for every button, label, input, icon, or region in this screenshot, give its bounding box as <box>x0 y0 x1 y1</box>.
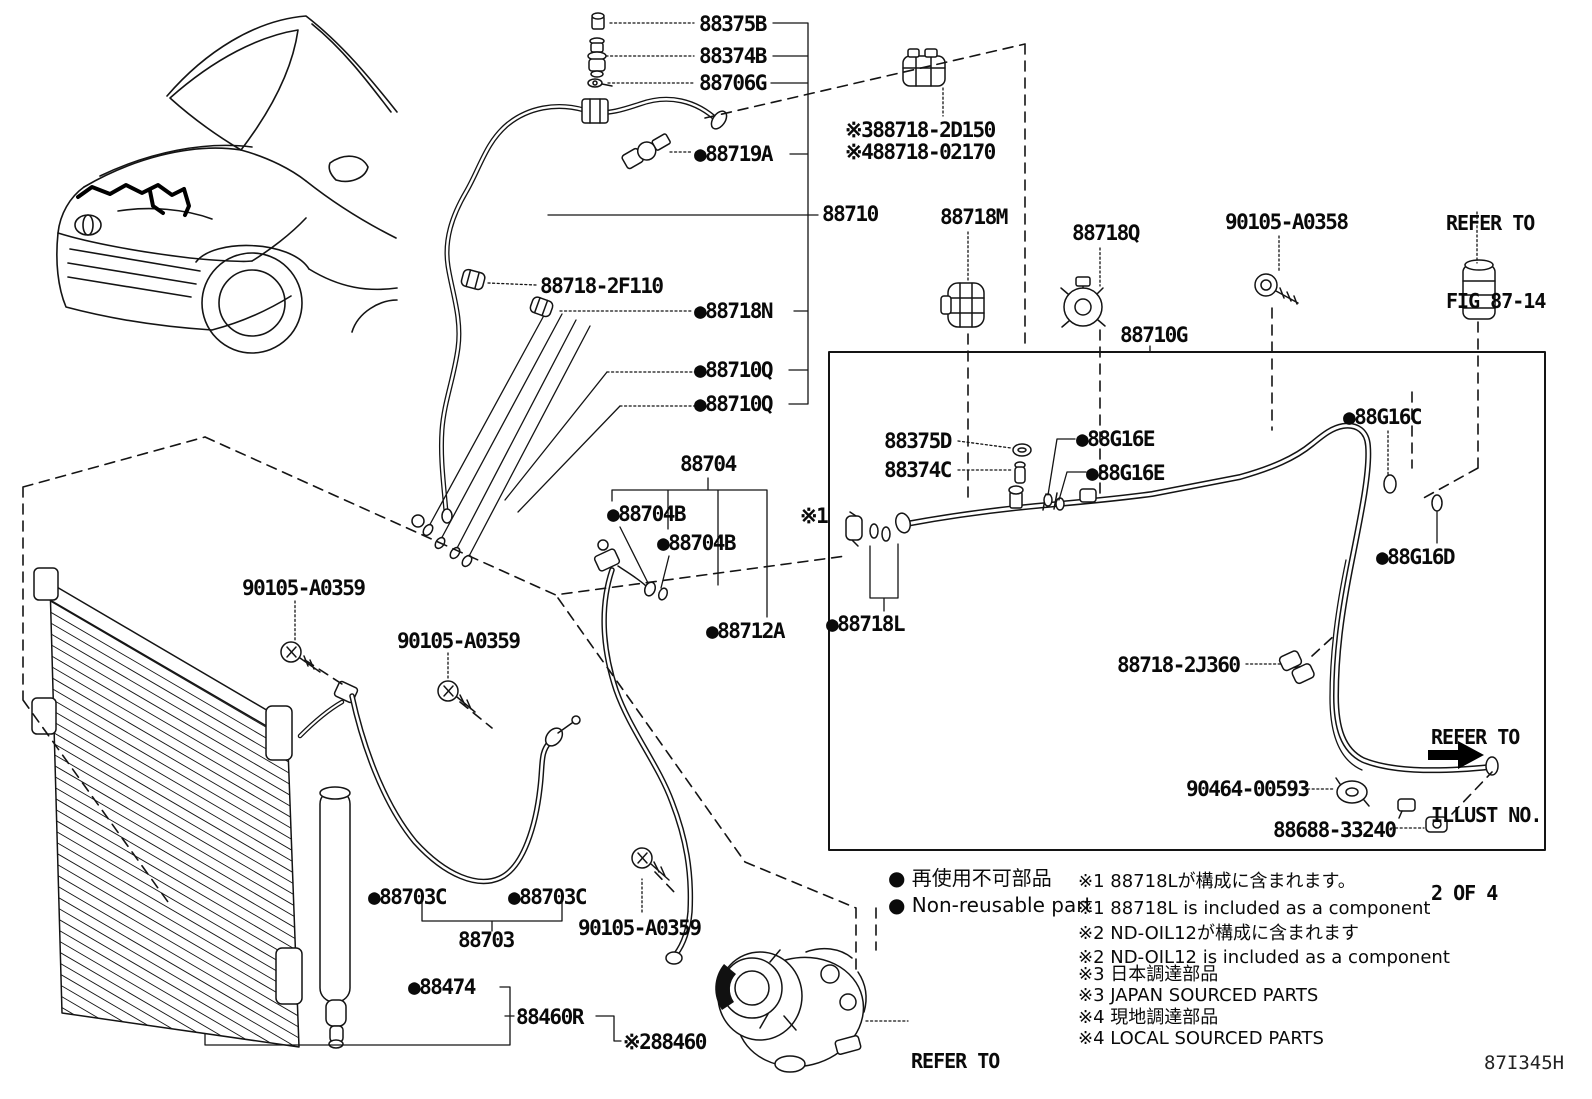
part-label-88718-2d150[interactable]: ※388718-2D150 <box>845 119 995 141</box>
grommet-88g16d-glyph <box>1432 495 1442 511</box>
part-label-88719a[interactable]: ●88719A <box>694 143 772 165</box>
legend-non-reusable-en: ● Non-reusable part <box>888 893 1092 917</box>
note-1-jp: ※1 88718Lが構成に含まれます。 <box>1078 871 1356 892</box>
refer-to-fig-87-14: REFER TO FIG 87-14 <box>1446 158 1545 340</box>
part-label-88718l[interactable]: ●88718L <box>826 613 904 635</box>
note-3-en: ※3 JAPAN SOURCED PARTS <box>1078 985 1318 1006</box>
note-1-en: ※1 88718L is included as a component <box>1078 898 1430 919</box>
part-label-88g16e-1[interactable]: ●88G16E <box>1076 428 1154 450</box>
part-label-90105-a0358[interactable]: 90105-A0358 <box>1225 211 1348 233</box>
part-label-88712a[interactable]: ●88712A <box>706 620 784 642</box>
part-label-88718m[interactable]: 88718M <box>940 206 1007 228</box>
part-label-88704b-2[interactable]: ●88704B <box>657 532 735 554</box>
compressor-sketch <box>715 944 875 1080</box>
grommet-88g16c-glyph <box>1384 475 1396 493</box>
valve-core-88374c-glyph <box>1015 462 1025 483</box>
cap-88375d-glyph <box>1013 444 1031 456</box>
note-3-jp: ※3 日本調達部品 <box>1078 964 1218 985</box>
part-label-88375d[interactable]: 88375D <box>884 430 951 452</box>
part-label-88688-33240[interactable]: 88688-33240 <box>1273 819 1396 841</box>
vehicle-sketch <box>57 16 397 353</box>
note-marker-1: ※1 <box>800 505 827 527</box>
refer-to-illust-2of4: REFER TO ILLUST NO. 2 OF 4 <box>1431 672 1541 932</box>
drawing-code: 87I345H <box>1484 1052 1564 1074</box>
part-label-90105-a0359-1[interactable]: 90105-A0359 <box>242 577 365 599</box>
note-4-en: ※4 LOCAL SOURCED PARTS <box>1078 1028 1324 1049</box>
note-2-jp: ※2 ND-OIL12が構成に含まれます <box>1078 923 1359 944</box>
part-label-88718q[interactable]: 88718Q <box>1072 222 1139 244</box>
part-label-88703c-2[interactable]: ●88703C <box>508 886 586 908</box>
part-label-88704b-1[interactable]: ●88704B <box>607 503 685 525</box>
part-label-90105-a0359-3[interactable]: 90105-A0359 <box>578 917 701 939</box>
part-label-88703[interactable]: 88703 <box>458 929 514 951</box>
receiver-drier <box>320 787 350 1048</box>
cooler-pipe-88710-drawing <box>412 99 730 568</box>
discharge-hose-88703 <box>352 696 580 881</box>
part-label-88718-2f110[interactable]: 88718-2F110 <box>540 275 663 297</box>
part-label-88718-02170[interactable]: ※488718-02170 <box>845 141 995 163</box>
refer-line: REFER TO <box>911 1048 1010 1074</box>
bolt-90105-a0358-glyph <box>1255 274 1298 304</box>
part-label-88710q-1[interactable]: ●88710Q <box>694 359 772 381</box>
part-label-88374c[interactable]: 88374C <box>884 459 951 481</box>
part-label-88460[interactable]: ※288460 <box>623 1031 706 1053</box>
part-label-88g16d[interactable]: ●88G16D <box>1376 546 1454 568</box>
part-label-88718n[interactable]: ●88718N <box>694 300 772 322</box>
note-4-jp: ※4 現地調達部品 <box>1078 1007 1218 1028</box>
part-label-88460r[interactable]: 88460R <box>516 1006 583 1028</box>
bolt-90105-a0359-glyph-1 <box>281 642 320 672</box>
valve-core-88374b-glyph <box>588 38 606 77</box>
refer-line: ILLUST NO. <box>1431 802 1541 828</box>
part-label-88703c-1[interactable]: ●88703C <box>368 886 446 908</box>
part-label-88g16e-2[interactable]: ●88G16E <box>1086 462 1164 484</box>
part-label-88474[interactable]: ●88474 <box>408 976 475 998</box>
part-label-88710[interactable]: 88710 <box>822 203 878 225</box>
part-label-88704[interactable]: 88704 <box>680 453 736 475</box>
clamp-88718m-glyph <box>941 283 984 327</box>
part-label-88375b[interactable]: 88375B <box>699 13 766 35</box>
refer-line: REFER TO <box>1446 210 1545 236</box>
clip-88718-2j360-glyph <box>1278 647 1315 687</box>
condenser-core <box>32 568 358 1099</box>
legend-non-reusable-jp: ● 再使用不可部品 <box>888 866 1052 890</box>
cap-88375b-glyph <box>592 13 604 29</box>
clamp-90464-00593-glyph <box>1336 778 1369 806</box>
part-label-88710q-2[interactable]: ●88710Q <box>694 393 772 415</box>
refer-line: 2 OF 4 <box>1431 880 1541 906</box>
clamp-88718q-glyph <box>1061 277 1105 327</box>
part-label-88710g[interactable]: 88710G <box>1120 324 1187 346</box>
part-label-90464-00593[interactable]: 90464-00593 <box>1186 778 1309 800</box>
clip-88718-2f110-glyph <box>460 268 486 290</box>
parts-diagram-page: 88375B 88374B 88706G ●88719A 88710 ※3887… <box>0 0 1592 1099</box>
part-label-88g16c[interactable]: ●88G16C <box>1343 406 1421 428</box>
bolt-90105-a0359-glyph-2 <box>438 681 475 712</box>
clip-88718n-glyph <box>529 296 554 318</box>
bolt-90105-a0359-glyph-3 <box>632 848 669 880</box>
refer-line: FIG 87-14 <box>1446 288 1545 314</box>
refer-line: REFER TO <box>1431 724 1541 750</box>
pressure-switch-88719a-glyph <box>621 131 673 172</box>
part-label-90105-a0359-2[interactable]: 90105-A0359 <box>397 630 520 652</box>
part-label-88374b[interactable]: 88374B <box>699 45 766 67</box>
part-label-88706g[interactable]: 88706G <box>699 72 766 94</box>
part-label-88718-2j360[interactable]: 88718-2J360 <box>1117 654 1240 676</box>
refer-to-fig-87-19: REFER TO FIG 87-19 <box>911 996 1010 1099</box>
